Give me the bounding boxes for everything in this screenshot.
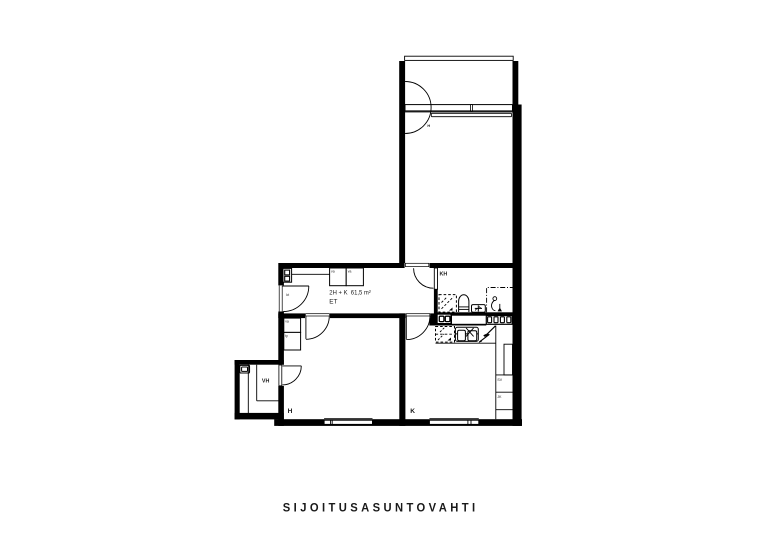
svg-text:ET: ET — [329, 298, 337, 305]
svg-text:SIJOITUSASUNTOVAHTI: SIJOITUSASUNTOVAHTI — [283, 502, 479, 514]
svg-text:va: va — [285, 319, 289, 323]
svg-text:H: H — [288, 408, 293, 415]
svg-text:2H + K 61,5 m²: 2H + K 61,5 m² — [329, 290, 371, 297]
svg-text:va: va — [348, 270, 352, 274]
svg-text:KH: KH — [440, 271, 448, 277]
svg-text:ty: ty — [285, 334, 288, 338]
svg-text:va: va — [331, 270, 335, 274]
svg-text:K: K — [410, 408, 415, 415]
svg-text:JK: JK — [497, 395, 502, 399]
svg-text:VH: VH — [262, 379, 270, 385]
svg-text:kt: kt — [286, 293, 289, 297]
svg-text:SV: SV — [497, 378, 502, 382]
svg-text:H: H — [427, 124, 430, 128]
